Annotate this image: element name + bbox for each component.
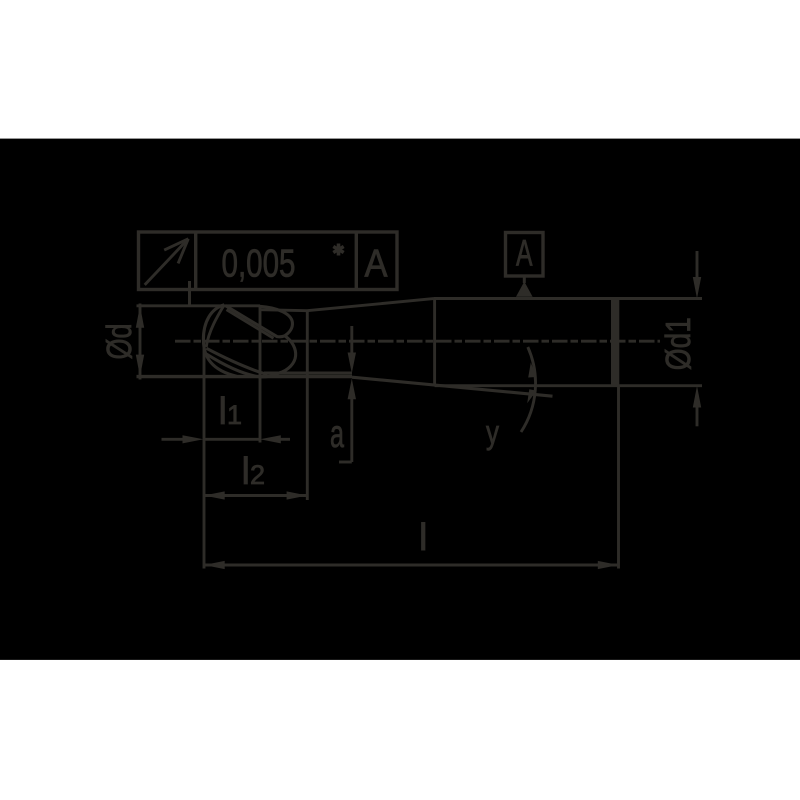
svg-text:l: l <box>419 517 427 559</box>
svg-text:0,005: 0,005 <box>222 242 296 285</box>
svg-text:A: A <box>516 233 533 274</box>
svg-text:A: A <box>365 243 388 286</box>
svg-text:y: y <box>486 414 499 451</box>
svg-text:a: a <box>330 413 344 456</box>
svg-text:Ød: Ød <box>100 324 139 360</box>
svg-text:Ød1: Ød1 <box>659 317 698 370</box>
